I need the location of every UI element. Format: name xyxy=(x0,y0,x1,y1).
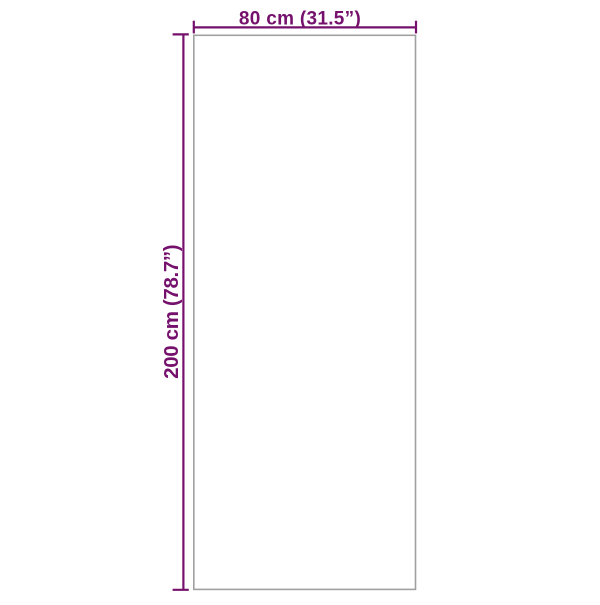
svg-text:200 cm (78.7”): 200 cm (78.7”) xyxy=(160,245,183,379)
svg-text:80 cm (31.5”): 80 cm (31.5”) xyxy=(239,8,361,29)
